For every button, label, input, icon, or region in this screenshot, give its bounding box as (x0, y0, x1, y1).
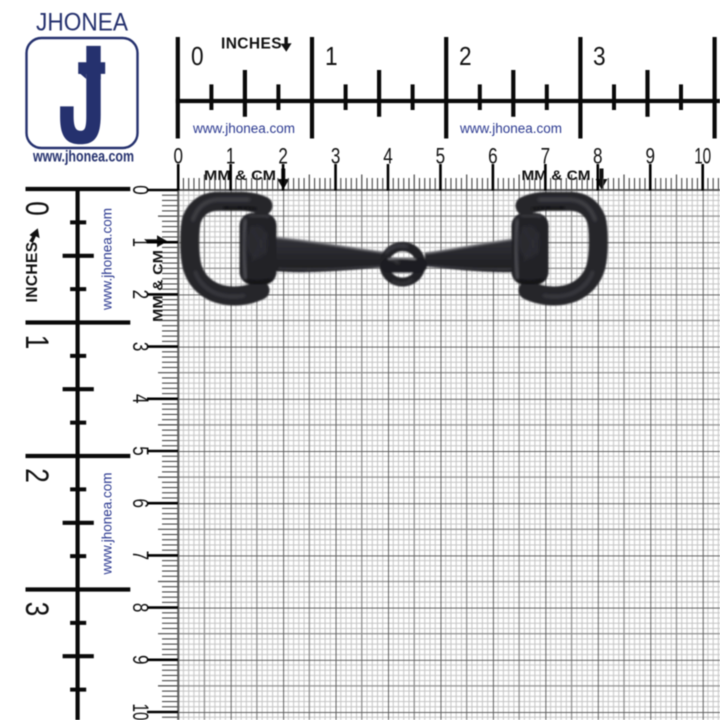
svg-text:1: 1 (325, 43, 338, 71)
svg-text:0: 0 (19, 201, 55, 216)
svg-text:www.jhonea.com: www.jhonea.com (459, 121, 562, 136)
svg-text:INCHES: INCHES (221, 36, 282, 53)
svg-text:www.jhonea.com: www.jhonea.com (100, 208, 115, 311)
svg-text:www.jhonea.com: www.jhonea.com (100, 472, 115, 575)
svg-text:www.jhonea.com: www.jhonea.com (32, 149, 134, 166)
svg-text:JHONEA: JHONEA (36, 9, 128, 37)
svg-text:MM & CM: MM & CM (150, 250, 166, 322)
svg-text:2: 2 (459, 43, 472, 71)
svg-text:0: 0 (191, 43, 204, 71)
svg-text:INCHES: INCHES (24, 242, 41, 303)
svg-text:2: 2 (19, 468, 55, 483)
svg-text:1: 1 (19, 335, 55, 350)
svg-text:3: 3 (19, 602, 55, 617)
svg-text:www.jhonea.com: www.jhonea.com (192, 121, 295, 136)
svg-text:3: 3 (593, 43, 606, 71)
